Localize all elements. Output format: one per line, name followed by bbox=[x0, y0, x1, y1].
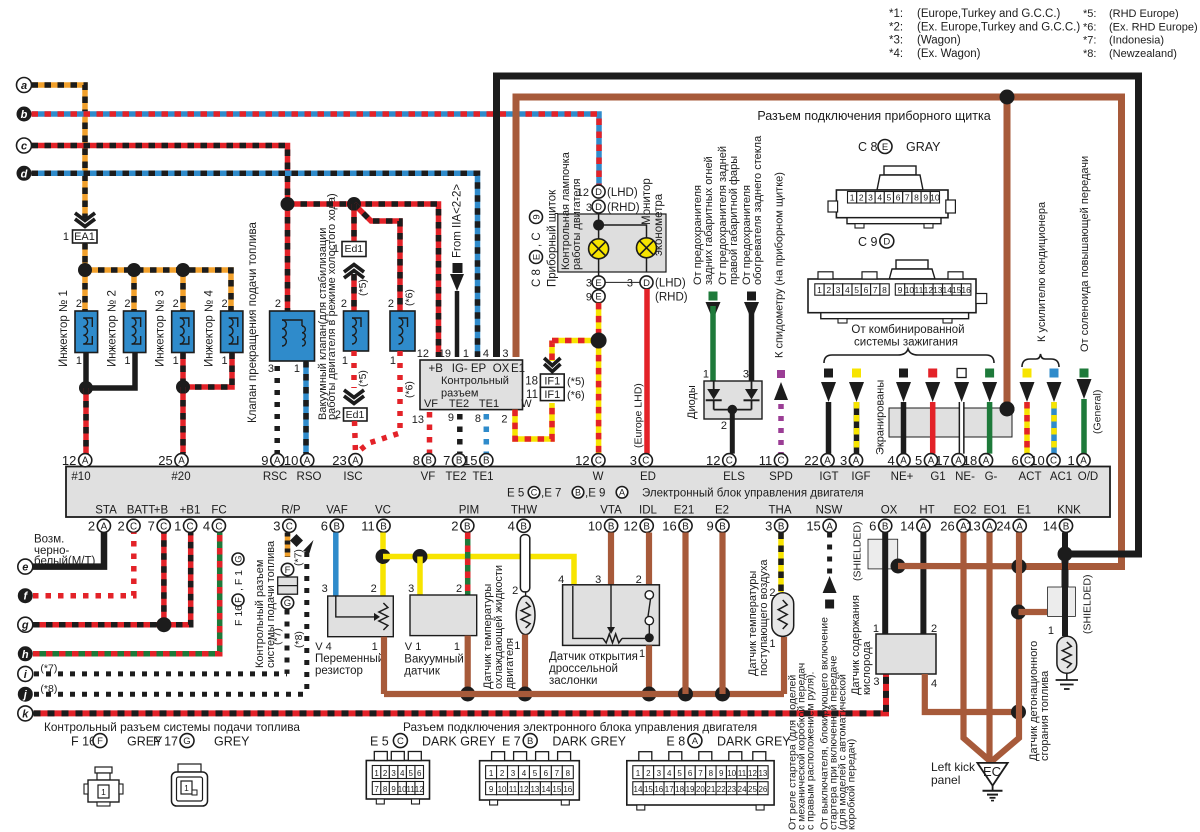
svg-text:(Ex. Wagon): (Ex. Wagon) bbox=[917, 48, 981, 60]
svg-text:резистор: резистор bbox=[315, 665, 363, 677]
svg-text:E: E bbox=[531, 254, 542, 260]
svg-text:B: B bbox=[682, 521, 689, 532]
svg-text:A: A bbox=[619, 488, 625, 498]
svg-text:4: 4 bbox=[400, 769, 405, 778]
svg-text:O/D: O/D bbox=[1078, 471, 1098, 483]
svg-text:TE2: TE2 bbox=[445, 471, 466, 483]
svg-text:V 1: V 1 bbox=[405, 641, 422, 653]
svg-text:коробкой передач): коробкой передач) bbox=[846, 739, 858, 830]
svg-text:12: 12 bbox=[62, 453, 76, 468]
svg-text:12: 12 bbox=[623, 518, 637, 533]
svg-text:12: 12 bbox=[417, 348, 429, 360]
svg-text:A: A bbox=[1016, 521, 1023, 532]
svg-text:E21: E21 bbox=[674, 505, 694, 517]
svg-text:Контрольный: Контрольный bbox=[441, 375, 509, 387]
svg-text:C: C bbox=[777, 456, 784, 467]
svg-text:*5:: *5: bbox=[1083, 8, 1096, 20]
svg-text:9: 9 bbox=[261, 453, 268, 468]
svg-text:системы зажигания: системы зажигания bbox=[854, 337, 958, 349]
svg-text:2: 2 bbox=[500, 769, 505, 778]
svg-text:NSW: NSW bbox=[816, 505, 843, 517]
svg-text:TE2: TE2 bbox=[449, 398, 469, 410]
svg-text:1: 1 bbox=[489, 769, 494, 778]
svg-text:1: 1 bbox=[850, 193, 855, 203]
svg-text:G1: G1 bbox=[930, 471, 945, 483]
svg-text:11: 11 bbox=[526, 389, 538, 401]
svg-text:3: 3 bbox=[627, 278, 633, 290]
svg-text:NE+: NE+ bbox=[891, 471, 914, 483]
svg-text:C: C bbox=[1050, 456, 1057, 467]
svg-text:A: A bbox=[352, 456, 359, 467]
svg-text:A: A bbox=[920, 521, 927, 532]
svg-text:11: 11 bbox=[759, 453, 773, 468]
svg-text:правой габаритной фары: правой габаритной фары bbox=[728, 156, 740, 285]
svg-text:3: 3 bbox=[322, 583, 328, 595]
svg-text:, F 1: , F 1 bbox=[233, 570, 245, 591]
svg-text:(Europe,Turkey and G.C.C.): (Europe,Turkey and G.C.C.) bbox=[917, 8, 1061, 20]
svg-text:12: 12 bbox=[748, 769, 757, 778]
svg-text:4: 4 bbox=[203, 518, 210, 533]
svg-text:+B: +B bbox=[429, 363, 444, 375]
svg-text:NE-: NE- bbox=[955, 471, 975, 483]
svg-text:13: 13 bbox=[966, 518, 980, 533]
svg-text:F: F bbox=[285, 565, 291, 576]
svg-text:2: 2 bbox=[221, 298, 227, 310]
svg-text:3: 3 bbox=[408, 583, 414, 595]
svg-text:9: 9 bbox=[923, 193, 928, 203]
svg-text:14: 14 bbox=[541, 785, 550, 794]
svg-text:E2: E2 bbox=[715, 505, 729, 517]
svg-text:26: 26 bbox=[940, 518, 954, 533]
svg-text:KNK: KNK bbox=[1057, 505, 1081, 517]
svg-text:3: 3 bbox=[630, 453, 637, 468]
svg-text:22: 22 bbox=[717, 785, 726, 794]
svg-text:1: 1 bbox=[703, 369, 709, 381]
svg-text:работы двигателя: работы двигателя bbox=[571, 178, 583, 270]
svg-text:B: B bbox=[483, 456, 490, 467]
svg-text:7: 7 bbox=[698, 769, 703, 778]
svg-text:*1:: *1: bbox=[889, 8, 903, 20]
svg-text:9: 9 bbox=[489, 785, 494, 794]
svg-text:работы двигателя в режиме холо: работы двигателя в режиме холостого хода… bbox=[326, 193, 338, 420]
svg-text:(*5): (*5) bbox=[567, 376, 585, 388]
svg-text:TE1: TE1 bbox=[479, 398, 499, 410]
svg-text:c: c bbox=[21, 141, 27, 153]
svg-text:18: 18 bbox=[675, 785, 684, 794]
svg-text:G: G bbox=[233, 555, 244, 562]
svg-text:E1: E1 bbox=[511, 363, 525, 375]
svg-text:G-: G- bbox=[985, 471, 998, 483]
svg-text:2: 2 bbox=[859, 193, 864, 203]
svg-text:4: 4 bbox=[522, 769, 527, 778]
svg-text:15: 15 bbox=[552, 785, 561, 794]
svg-text:13: 13 bbox=[412, 414, 424, 426]
svg-text:GREY: GREY bbox=[214, 734, 250, 748]
svg-text:(Indonesia): (Indonesia) bbox=[1109, 35, 1164, 47]
svg-text:12: 12 bbox=[415, 785, 424, 794]
svg-text:6: 6 bbox=[417, 769, 422, 778]
svg-text:19: 19 bbox=[439, 348, 451, 360]
svg-text:9: 9 bbox=[448, 412, 454, 424]
svg-text:A: A bbox=[986, 521, 993, 532]
svg-text:26: 26 bbox=[758, 785, 767, 794]
svg-text:G: G bbox=[183, 736, 190, 747]
svg-text:, С: , С bbox=[531, 232, 543, 247]
svg-text:1: 1 bbox=[873, 623, 879, 635]
svg-text:EO2: EO2 bbox=[953, 505, 976, 517]
svg-text:Контрольный разъем системы под: Контрольный разъем системы подачи топлив… bbox=[44, 720, 300, 734]
svg-text:(Wagon): (Wagon) bbox=[917, 35, 961, 47]
svg-text:EO1: EO1 bbox=[983, 505, 1006, 517]
svg-text:К спидометру (на приборном щит: К спидометру (на приборном щитке) bbox=[773, 172, 785, 358]
svg-text:B: B bbox=[778, 521, 785, 532]
svg-text:10: 10 bbox=[284, 453, 298, 468]
svg-text:3: 3 bbox=[586, 278, 592, 290]
svg-text:18: 18 bbox=[963, 453, 977, 468]
svg-text:2: 2 bbox=[931, 623, 937, 635]
svg-text:RSO: RSO bbox=[297, 471, 322, 483]
svg-text:B: B bbox=[1063, 521, 1070, 532]
svg-text:5: 5 bbox=[854, 285, 859, 295]
svg-text:F: F bbox=[233, 597, 244, 603]
svg-text:*6:: *6: bbox=[1083, 21, 1096, 33]
svg-text:B: B bbox=[882, 521, 889, 532]
svg-text:6: 6 bbox=[869, 518, 876, 533]
svg-text:VC: VC bbox=[375, 505, 391, 517]
svg-text:A: A bbox=[692, 736, 699, 747]
svg-text:24: 24 bbox=[996, 518, 1010, 533]
svg-text:Инжектор № 1: Инжектор № 1 bbox=[58, 290, 70, 367]
svg-text:B: B bbox=[643, 521, 650, 532]
svg-text:поступающего воздуха: поступающего воздуха bbox=[758, 559, 770, 676]
svg-text:(SHIELDED): (SHIELDED) bbox=[852, 521, 864, 581]
svg-text:1: 1 bbox=[174, 518, 181, 533]
svg-text:2: 2 bbox=[826, 285, 831, 295]
svg-text:1: 1 bbox=[514, 640, 520, 652]
svg-text:A: A bbox=[826, 521, 833, 532]
svg-text:3: 3 bbox=[391, 769, 396, 778]
svg-text:8: 8 bbox=[709, 769, 714, 778]
svg-text:E 7: E 7 bbox=[502, 734, 521, 748]
svg-text:B: B bbox=[520, 521, 527, 532]
svg-text:От соленоида повышающей переда: От соленоида повышающей передачи bbox=[1079, 156, 1091, 352]
svg-text:8: 8 bbox=[566, 769, 571, 778]
svg-text:16: 16 bbox=[662, 518, 676, 533]
svg-text:F 17: F 17 bbox=[153, 734, 178, 748]
svg-text:ACT: ACT bbox=[1019, 471, 1042, 483]
svg-text:D: D bbox=[643, 278, 650, 289]
svg-text:THW: THW bbox=[511, 505, 537, 517]
svg-text:B: B bbox=[527, 736, 533, 747]
svg-text:EP: EP bbox=[471, 363, 487, 375]
svg-text:1: 1 bbox=[63, 231, 69, 243]
svg-text:A: A bbox=[928, 456, 935, 467]
svg-text:C 9: C 9 bbox=[858, 235, 878, 249]
svg-text:2: 2 bbox=[383, 769, 388, 778]
svg-text:6: 6 bbox=[544, 769, 549, 778]
svg-text:(Ex. Europe,Turkey and G.C.C.): (Ex. Europe,Turkey and G.C.C.) bbox=[917, 21, 1080, 33]
svg-text:A: A bbox=[900, 456, 907, 467]
svg-text:Вакуумный: Вакуумный bbox=[404, 654, 464, 666]
svg-text:A: A bbox=[983, 456, 990, 467]
svg-text:Возм.: Возм. bbox=[34, 534, 64, 546]
svg-text:3: 3 bbox=[743, 369, 749, 381]
svg-text:5: 5 bbox=[677, 769, 682, 778]
svg-text:9: 9 bbox=[706, 518, 713, 533]
svg-text:2: 2 bbox=[76, 298, 82, 310]
svg-text:2: 2 bbox=[117, 518, 124, 533]
svg-text:17: 17 bbox=[665, 785, 674, 794]
svg-text:EC: EC bbox=[983, 764, 1001, 779]
svg-text:VF: VF bbox=[424, 398, 438, 410]
svg-text:IGF: IGF bbox=[851, 471, 870, 483]
svg-text:1: 1 bbox=[636, 769, 641, 778]
svg-text:THA: THA bbox=[769, 505, 792, 517]
svg-text:(LHD): (LHD) bbox=[607, 187, 638, 199]
svg-text:HT: HT bbox=[919, 505, 934, 517]
svg-text:6: 6 bbox=[864, 285, 869, 295]
svg-text:5: 5 bbox=[915, 453, 922, 468]
svg-text:Разъем подключения электронног: Разъем подключения электронного блока уп… bbox=[403, 720, 757, 734]
svg-text:A: A bbox=[853, 456, 860, 467]
svg-text:2: 2 bbox=[88, 518, 95, 533]
svg-text:3: 3 bbox=[840, 453, 847, 468]
svg-text:(*7): (*7) bbox=[272, 628, 284, 645]
svg-text:22: 22 bbox=[804, 453, 818, 468]
svg-text:*7:: *7: bbox=[1083, 35, 1096, 47]
svg-text:1: 1 bbox=[184, 783, 189, 793]
svg-text:13: 13 bbox=[933, 285, 943, 295]
svg-text:VAF: VAF bbox=[326, 505, 348, 517]
svg-text:(*7): (*7) bbox=[293, 549, 305, 566]
svg-text:6: 6 bbox=[688, 769, 693, 778]
svg-text:F 16: F 16 bbox=[233, 605, 245, 626]
svg-text:OX: OX bbox=[493, 363, 510, 375]
svg-text:1: 1 bbox=[374, 769, 379, 778]
svg-text:Экранированы: Экранированы bbox=[874, 380, 886, 455]
svg-text:h: h bbox=[22, 649, 29, 661]
svg-text:21: 21 bbox=[706, 785, 715, 794]
svg-text:1: 1 bbox=[769, 638, 775, 650]
svg-text:E: E bbox=[882, 142, 888, 153]
svg-text:C: C bbox=[642, 456, 649, 467]
svg-text:C 8: C 8 bbox=[858, 140, 878, 154]
svg-text:A: A bbox=[1080, 456, 1087, 467]
svg-text:EA1: EA1 bbox=[74, 231, 95, 243]
svg-text:+B1: +B1 bbox=[180, 505, 201, 517]
svg-text:7: 7 bbox=[443, 453, 450, 468]
svg-text:3: 3 bbox=[836, 285, 841, 295]
svg-text:g: g bbox=[21, 620, 29, 632]
svg-text:Клапан прекращения подачи топл: Клапан прекращения подачи топлива bbox=[247, 222, 259, 423]
svg-text:14: 14 bbox=[943, 285, 953, 295]
svg-text:Диоды: Диоды bbox=[686, 385, 698, 419]
svg-text:A: A bbox=[178, 456, 185, 467]
svg-text:12: 12 bbox=[924, 285, 934, 295]
svg-text:1: 1 bbox=[639, 648, 645, 660]
svg-text:(*6): (*6) bbox=[567, 390, 585, 402]
svg-text:1: 1 bbox=[333, 243, 339, 255]
svg-text:(General): (General) bbox=[1092, 390, 1104, 434]
svg-text:2: 2 bbox=[646, 769, 651, 778]
svg-text:15: 15 bbox=[463, 453, 477, 468]
svg-text:9: 9 bbox=[586, 292, 592, 304]
svg-text:STA: STA bbox=[95, 505, 117, 517]
svg-text:ED: ED bbox=[640, 471, 656, 483]
svg-text:W: W bbox=[593, 471, 604, 483]
svg-text:FC: FC bbox=[211, 505, 226, 517]
svg-text:2: 2 bbox=[721, 420, 727, 432]
svg-text:7: 7 bbox=[148, 518, 155, 533]
svg-text:14: 14 bbox=[1043, 518, 1057, 533]
svg-text:D: D bbox=[883, 236, 890, 247]
svg-text:1: 1 bbox=[1048, 625, 1054, 637]
svg-text:23: 23 bbox=[332, 453, 346, 468]
svg-text:(RHD): (RHD) bbox=[607, 202, 640, 214]
svg-text:E 5: E 5 bbox=[507, 487, 524, 499]
svg-text:9: 9 bbox=[719, 769, 724, 778]
svg-text:11: 11 bbox=[738, 769, 747, 778]
svg-text:3: 3 bbox=[868, 193, 873, 203]
svg-text:*8:: *8: bbox=[1083, 48, 1096, 60]
svg-text:E1: E1 bbox=[1017, 505, 1031, 517]
svg-text:12: 12 bbox=[706, 453, 720, 468]
svg-text:25: 25 bbox=[158, 453, 172, 468]
svg-text:e: e bbox=[22, 562, 28, 574]
svg-text:DARK GREY: DARK GREY bbox=[717, 734, 791, 748]
svg-text:25: 25 bbox=[748, 785, 757, 794]
svg-text:B: B bbox=[334, 521, 341, 532]
svg-text:4: 4 bbox=[887, 453, 894, 468]
svg-text:обогревателя заднего стекла: обогревателя заднего стекла bbox=[752, 135, 764, 285]
svg-text:1: 1 bbox=[124, 355, 130, 367]
svg-text:10: 10 bbox=[1030, 453, 1044, 468]
svg-text:8: 8 bbox=[413, 453, 420, 468]
svg-text:From IIA<2-2>: From IIA<2-2> bbox=[452, 184, 464, 258]
svg-text:7: 7 bbox=[873, 285, 878, 295]
svg-text:(LHD): (LHD) bbox=[655, 278, 686, 290]
svg-text:4: 4 bbox=[508, 518, 515, 533]
svg-text:14: 14 bbox=[634, 785, 643, 794]
svg-text:(Europe LHD): (Europe LHD) bbox=[633, 383, 645, 448]
svg-text:3: 3 bbox=[873, 676, 879, 688]
svg-text:4: 4 bbox=[931, 678, 937, 690]
svg-text:3: 3 bbox=[511, 769, 516, 778]
svg-text:*3:: *3: bbox=[889, 35, 903, 47]
svg-text:1: 1 bbox=[372, 641, 378, 653]
svg-text:К усилителю кондиционера: К усилителю кондиционера bbox=[1036, 201, 1048, 342]
svg-text:Left kick: Left kick bbox=[931, 760, 976, 774]
svg-text:10: 10 bbox=[498, 785, 507, 794]
svg-text:panel: panel bbox=[931, 773, 960, 787]
svg-text:1: 1 bbox=[101, 787, 106, 797]
svg-text:A: A bbox=[274, 456, 281, 467]
svg-text:1: 1 bbox=[817, 285, 822, 295]
svg-text:Инжектор № 2: Инжектор № 2 bbox=[107, 290, 119, 367]
svg-text:D: D bbox=[595, 202, 602, 213]
svg-text:15: 15 bbox=[806, 518, 820, 533]
svg-text:(*5): (*5) bbox=[357, 370, 369, 387]
svg-text:2: 2 bbox=[371, 583, 377, 595]
svg-text:18: 18 bbox=[525, 376, 538, 388]
svg-text:с правым расположением руля).: с правым расположением руля). bbox=[805, 672, 817, 830]
svg-text:A: A bbox=[82, 456, 89, 467]
svg-text:7: 7 bbox=[905, 193, 910, 203]
svg-text:B: B bbox=[719, 521, 726, 532]
svg-text:14: 14 bbox=[900, 518, 914, 533]
svg-text:(*8): (*8) bbox=[293, 631, 305, 648]
svg-text:B: B bbox=[380, 521, 387, 532]
svg-text:GRAY: GRAY bbox=[906, 140, 941, 154]
svg-text:23: 23 bbox=[727, 785, 736, 794]
svg-text:3: 3 bbox=[657, 769, 662, 778]
svg-text:D: D bbox=[595, 187, 602, 198]
svg-text:E: E bbox=[595, 278, 601, 289]
svg-text:11: 11 bbox=[509, 785, 518, 794]
svg-text:4: 4 bbox=[845, 285, 850, 295]
svg-text:8: 8 bbox=[383, 785, 388, 794]
svg-text:6: 6 bbox=[321, 518, 328, 533]
svg-text:1: 1 bbox=[76, 355, 82, 367]
svg-text:5: 5 bbox=[887, 193, 892, 203]
svg-text:(RHD Europe): (RHD Europe) bbox=[1109, 8, 1179, 20]
svg-text:19: 19 bbox=[686, 785, 695, 794]
svg-text:C: C bbox=[215, 521, 222, 532]
svg-text:6: 6 bbox=[896, 193, 901, 203]
svg-text:2: 2 bbox=[512, 585, 518, 597]
svg-text:2: 2 bbox=[451, 518, 458, 533]
svg-text:13: 13 bbox=[758, 769, 767, 778]
svg-text:(*5): (*5) bbox=[357, 279, 369, 296]
svg-text:15: 15 bbox=[952, 285, 962, 295]
svg-text:кислорода: кислорода bbox=[861, 640, 873, 695]
svg-text:заслонки: заслонки bbox=[549, 675, 597, 687]
svg-text:17: 17 bbox=[935, 453, 949, 468]
svg-text:R/P: R/P bbox=[281, 505, 301, 517]
svg-text:Разъем подключения приборного: Разъем подключения приборного щитка bbox=[757, 109, 990, 123]
svg-text:PIM: PIM bbox=[459, 505, 479, 517]
svg-text:12: 12 bbox=[520, 785, 529, 794]
svg-text:датчик: датчик bbox=[404, 666, 441, 678]
svg-text:7: 7 bbox=[374, 785, 379, 794]
svg-text:2: 2 bbox=[124, 298, 130, 310]
svg-text:B: B bbox=[456, 456, 463, 467]
svg-text:5: 5 bbox=[408, 769, 413, 778]
svg-text:задних габаритных огней: задних габаритных огней bbox=[703, 156, 715, 285]
svg-text:3: 3 bbox=[502, 348, 508, 360]
svg-text:9: 9 bbox=[531, 214, 542, 219]
svg-text:От комбинированной: От комбинированной bbox=[851, 324, 964, 336]
svg-text:сгорания топлива: сгорания топлива bbox=[1039, 670, 1051, 761]
svg-text:d: d bbox=[21, 168, 28, 180]
svg-text:Инжектор № 3: Инжектор № 3 bbox=[155, 290, 167, 367]
svg-text:7: 7 bbox=[555, 769, 560, 778]
svg-text:9: 9 bbox=[391, 785, 396, 794]
svg-text:24: 24 bbox=[738, 785, 747, 794]
svg-text:системы подачи топлива: системы подачи топлива bbox=[265, 540, 277, 668]
svg-text:b: b bbox=[21, 109, 28, 121]
svg-text:2: 2 bbox=[275, 298, 281, 310]
svg-text:IF1: IF1 bbox=[544, 389, 560, 401]
svg-text:E 5: E 5 bbox=[370, 734, 389, 748]
svg-text:(*6): (*6) bbox=[404, 381, 416, 398]
svg-text:9: 9 bbox=[898, 285, 903, 295]
svg-text:C: C bbox=[397, 736, 404, 747]
svg-text:IF1: IF1 bbox=[544, 376, 560, 388]
svg-text:V 4: V 4 bbox=[315, 641, 332, 653]
svg-text:Приборный щиток: Приборный щиток bbox=[547, 189, 559, 287]
svg-text:1: 1 bbox=[294, 363, 300, 375]
